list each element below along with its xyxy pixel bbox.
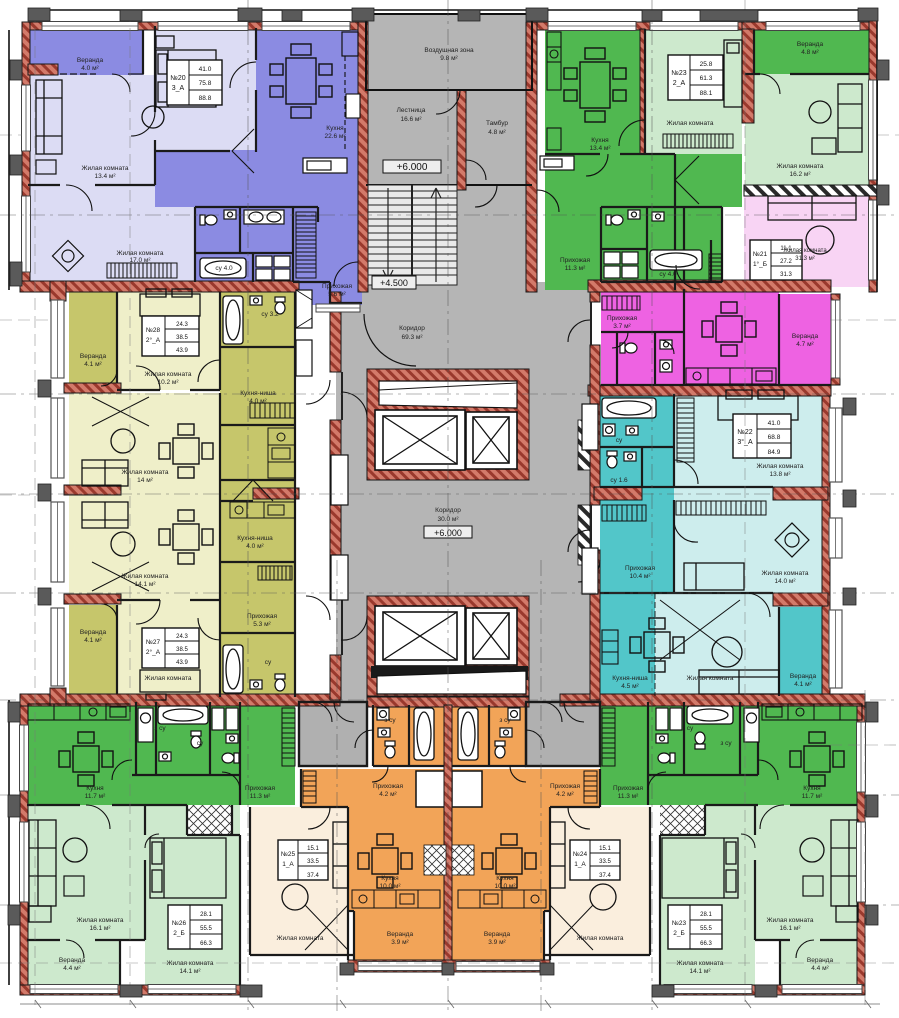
svg-text:Кухня: Кухня (86, 785, 104, 792)
svg-text:11.7 м²: 11.7 м² (85, 793, 106, 800)
svg-text:Кухня: Кухня (591, 137, 609, 144)
svg-text:4.5 м²: 4.5 м² (621, 683, 639, 690)
svg-text:24.3: 24.3 (176, 634, 188, 640)
svg-text:10.4 м²: 10.4 м² (629, 573, 651, 580)
svg-text:33.5: 33.5 (307, 859, 319, 865)
svg-text:Прихожая: Прихожая (322, 283, 353, 290)
svg-text:11.3 м²: 11.3 м² (250, 793, 271, 800)
svg-text:Жилая комната: Жилая комната (667, 120, 714, 127)
svg-text:22.6 м²: 22.6 м² (324, 133, 346, 140)
svg-text:25.8: 25.8 (700, 61, 713, 68)
svg-text:2°_А: 2°_А (146, 648, 161, 656)
svg-text:+4.500: +4.500 (380, 278, 408, 288)
svg-text:75.8: 75.8 (199, 80, 212, 87)
svg-text:13.4 м²: 13.4 м² (589, 145, 611, 152)
svg-text:16.1 м²: 16.1 м² (89, 925, 111, 932)
svg-text:4.0 м²: 4.0 м² (81, 65, 99, 72)
svg-text:Кухня: Кухня (381, 875, 399, 882)
svg-text:Прихожая: Прихожая (550, 783, 581, 790)
svg-text:28.1: 28.1 (200, 912, 212, 918)
svg-text:Жилая комната: Жилая комната (145, 371, 192, 378)
svg-text:37.4: 37.4 (307, 873, 319, 879)
svg-text:№24: №24 (573, 851, 588, 858)
svg-text:24.3: 24.3 (176, 322, 188, 328)
svg-text:Кухня: Кухня (803, 785, 821, 792)
svg-text:Веранда: Веранда (77, 57, 104, 64)
svg-text:Прихожая: Прихожая (373, 783, 404, 790)
svg-text:1_А: 1_А (282, 861, 294, 868)
svg-text:Кухня: Кухня (326, 125, 344, 132)
svg-text:Жилая комната: Жилая комната (277, 935, 324, 942)
svg-text:3.9 м²: 3.9 м² (488, 939, 506, 946)
svg-text:68.8: 68.8 (768, 434, 781, 441)
svg-text:су 1.6: су 1.6 (610, 477, 628, 484)
svg-text:16.6 м²: 16.6 м² (400, 116, 422, 123)
svg-text:38.5: 38.5 (176, 647, 188, 653)
svg-text:№28: №28 (146, 327, 161, 334)
svg-text:Прихожая: Прихожая (613, 785, 644, 792)
svg-text:Жилая комната: Жилая комната (117, 250, 164, 257)
svg-text:31.3 м²: 31.3 м² (795, 256, 814, 262)
svg-text:Веранда: Веранда (387, 931, 414, 938)
svg-text:з су: з су (499, 717, 511, 724)
svg-text:Кухня-ниша: Кухня-ниша (240, 390, 276, 397)
svg-text:2°_А: 2°_А (146, 336, 161, 344)
svg-text:Жилая комната: Жилая комната (777, 163, 824, 170)
svg-text:55.5: 55.5 (700, 926, 712, 932)
svg-text:Жилая комната: Жилая комната (122, 469, 169, 476)
svg-text:69.3 м²: 69.3 м² (401, 334, 423, 341)
svg-text:№27: №27 (146, 639, 161, 646)
svg-text:9.8 м²: 9.8 м² (440, 55, 458, 62)
svg-text:2_А: 2_А (673, 80, 686, 87)
svg-text:Веранда: Веранда (484, 931, 511, 938)
svg-text:Веранда: Веранда (80, 629, 107, 636)
svg-text:3_А: 3_А (172, 85, 185, 92)
svg-text:37.4: 37.4 (599, 873, 611, 879)
svg-text:Жилая комната: Жилая комната (767, 917, 814, 924)
svg-text:43.9: 43.9 (176, 660, 188, 666)
svg-text:14.0 м²: 14.0 м² (774, 578, 796, 585)
svg-text:су: су (197, 740, 204, 747)
svg-text:13.4 м²: 13.4 м² (94, 173, 116, 180)
svg-text:Кухня: Кухня (496, 875, 514, 882)
svg-text:№26: №26 (172, 920, 187, 927)
svg-text:4.8 м²: 4.8 м² (801, 49, 819, 56)
svg-text:су: су (265, 659, 272, 666)
svg-text:Веранда: Веранда (797, 41, 824, 48)
svg-text:4.8 м²: 4.8 м² (488, 129, 506, 136)
svg-text:су 4.0: су 4.0 (659, 271, 677, 278)
svg-text:4.7 м²: 4.7 м² (796, 341, 814, 348)
svg-text:Прихожая: Прихожая (247, 613, 278, 620)
svg-text:су 4.0: су 4.0 (215, 265, 233, 272)
svg-text:Прихожая: Прихожая (560, 257, 591, 264)
svg-text:15.1: 15.1 (307, 846, 319, 852)
svg-text:11.3 м²: 11.3 м² (618, 793, 639, 800)
svg-text:61.3: 61.3 (700, 75, 713, 82)
svg-text:4.1 м²: 4.1 м² (794, 681, 812, 688)
svg-text:66.3: 66.3 (200, 941, 212, 947)
svg-text:11.3 м²: 11.3 м² (565, 265, 586, 272)
svg-text:Веранда: Веранда (790, 673, 817, 680)
svg-text:Коридор: Коридор (399, 325, 425, 332)
svg-text:Веранда: Веранда (792, 333, 819, 340)
svg-text:88.8: 88.8 (199, 95, 212, 102)
svg-text:+6.000: +6.000 (397, 162, 428, 173)
svg-text:4.0 м²: 4.0 м² (246, 543, 264, 550)
svg-text:10.0 м²: 10.0 м² (379, 883, 401, 890)
svg-text:14.1 м²: 14.1 м² (179, 968, 201, 975)
svg-text:Жилая комната: Жилая комната (145, 675, 192, 682)
svg-text:5.3 м²: 5.3 м² (253, 621, 271, 628)
svg-text:Жилая комната: Жилая комната (677, 960, 724, 967)
svg-text:Кухня-ниша: Кухня-ниша (237, 535, 273, 542)
svg-text:Прихожая: Прихожая (607, 315, 638, 322)
svg-text:41.0: 41.0 (768, 420, 781, 427)
svg-text:16.2 м²: 16.2 м² (789, 171, 811, 178)
svg-text:16.1 м²: 16.1 м² (779, 925, 801, 932)
svg-text:3.7 м²: 3.7 м² (613, 323, 631, 330)
svg-text:з су: з су (720, 740, 732, 747)
svg-text:Прихожая: Прихожая (625, 565, 656, 572)
svg-text:№25: №25 (281, 851, 296, 858)
svg-text:Жилая комната: Жилая комната (122, 573, 169, 580)
svg-text:Кухня-ниша: Кухня-ниша (612, 675, 648, 682)
svg-text:4.1 м²: 4.1 м² (84, 361, 102, 368)
svg-text:27.2: 27.2 (780, 259, 792, 265)
svg-text:су: су (616, 437, 623, 444)
svg-text:4.2 м²: 4.2 м² (556, 791, 574, 798)
svg-text:15.1: 15.1 (599, 846, 611, 852)
svg-text:Прихожая: Прихожая (245, 785, 276, 792)
svg-text:30.0 м²: 30.0 м² (437, 516, 459, 523)
svg-text:55.5: 55.5 (200, 926, 212, 932)
svg-text:Жилая комната: Жилая комната (577, 935, 624, 942)
svg-text:№21: №21 (753, 251, 768, 258)
svg-text:Лестница: Лестница (397, 107, 426, 114)
svg-text:33.5: 33.5 (599, 859, 611, 865)
svg-text:84.9: 84.9 (768, 449, 781, 456)
svg-text:№23: №23 (672, 920, 687, 927)
svg-text:2_Б: 2_Б (673, 930, 685, 937)
svg-text:Жилая комната: Жилая комната (82, 165, 129, 172)
svg-text:Тамбур: Тамбур (486, 119, 508, 127)
svg-text:31.3: 31.3 (780, 272, 792, 278)
svg-text:№23: №23 (671, 70, 686, 77)
svg-text:10.2 м²: 10.2 м² (157, 379, 179, 386)
svg-text:43.9: 43.9 (176, 348, 188, 354)
svg-text:4.1 м²: 4.1 м² (84, 637, 102, 644)
svg-text:28.1: 28.1 (700, 912, 712, 918)
svg-text:з су: з су (384, 717, 396, 724)
svg-text:3.9 м²: 3.9 м² (391, 939, 409, 946)
svg-text:14.1 м²: 14.1 м² (134, 581, 156, 588)
svg-text:5.6 м²: 5.6 м² (328, 291, 346, 298)
svg-text:Жилая комната: Жилая комната (757, 463, 804, 470)
svg-text:4.2 м²: 4.2 м² (379, 791, 397, 798)
svg-text:11.7 м²: 11.7 м² (802, 793, 823, 800)
svg-text:66.3: 66.3 (700, 941, 712, 947)
svg-text:з су: з су (154, 725, 166, 732)
svg-text:4.4 м²: 4.4 м² (811, 965, 829, 972)
svg-text:1°_Б: 1°_Б (753, 260, 767, 268)
svg-text:1_А: 1_А (574, 861, 586, 868)
svg-text:14 м²: 14 м² (137, 477, 154, 484)
svg-text:14.1 м²: 14.1 м² (689, 968, 711, 975)
svg-text:Воздушная зона: Воздушная зона (424, 47, 474, 54)
svg-text:2_Б: 2_Б (173, 930, 185, 937)
svg-text:су: су (687, 725, 694, 732)
svg-text:38.5: 38.5 (176, 335, 188, 341)
svg-text:Жилая комната: Жилая комната (77, 917, 124, 924)
svg-text:17.0 м²: 17.0 м² (129, 257, 151, 264)
svg-text:Жилая комната: Жилая комната (783, 248, 827, 254)
svg-text:88.1: 88.1 (700, 90, 713, 97)
svg-text:су 3.2: су 3.2 (261, 311, 279, 318)
svg-text:4.0 м²: 4.0 м² (249, 398, 267, 405)
svg-text:13.8 м²: 13.8 м² (769, 471, 791, 478)
svg-text:Жилая комната: Жилая комната (687, 675, 734, 682)
svg-text:Жилая комната: Жилая комната (167, 960, 214, 967)
svg-text:41.0: 41.0 (199, 66, 212, 73)
svg-text:4.4 м²: 4.4 м² (63, 965, 81, 972)
svg-text:Веранда: Веранда (80, 353, 107, 360)
svg-text:10.0 м²: 10.0 м² (494, 883, 516, 890)
svg-text:Жилая комната: Жилая комната (762, 570, 809, 577)
svg-text:№20: №20 (170, 75, 185, 82)
